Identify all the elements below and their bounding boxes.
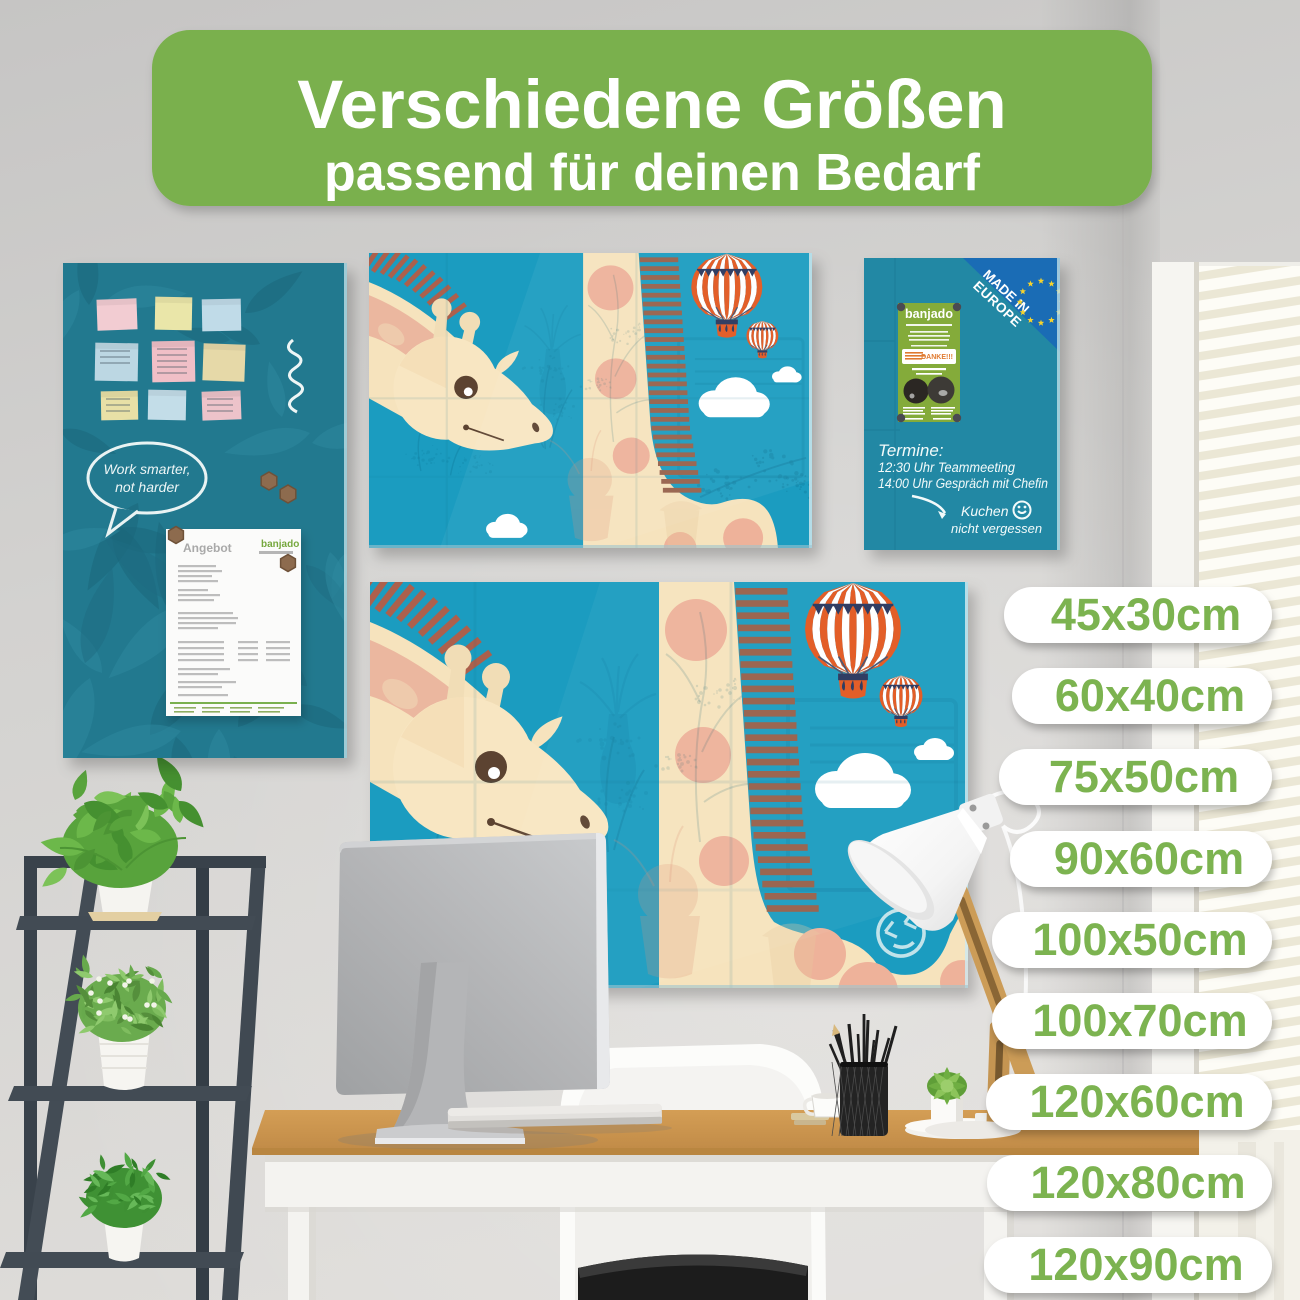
svg-text:120x60cm: 120x60cm bbox=[1029, 1076, 1244, 1127]
svg-text:45x30cm: 45x30cm bbox=[1051, 589, 1241, 640]
svg-text:passend für deinen Bedarf: passend für deinen Bedarf bbox=[324, 144, 981, 202]
svg-text:120x80cm: 120x80cm bbox=[1030, 1157, 1245, 1208]
svg-text:banjado: banjado bbox=[261, 539, 299, 550]
svg-text:Kuchen: Kuchen bbox=[961, 503, 1009, 519]
svg-text:Verschiedene Größen: Verschiedene Größen bbox=[297, 66, 1006, 143]
svg-text:Work smarter,: Work smarter, bbox=[103, 461, 190, 477]
svg-text:100x50cm: 100x50cm bbox=[1032, 914, 1247, 965]
svg-text:Angebot: Angebot bbox=[183, 541, 232, 555]
svg-text:not harder: not harder bbox=[115, 479, 180, 495]
svg-text:nicht vergessen: nicht vergessen bbox=[951, 521, 1042, 536]
svg-text:120x90cm: 120x90cm bbox=[1028, 1239, 1243, 1290]
svg-text:90x60cm: 90x60cm bbox=[1054, 833, 1244, 884]
svg-text:Termine:: Termine: bbox=[878, 441, 944, 460]
svg-text:60x40cm: 60x40cm bbox=[1055, 670, 1245, 721]
svg-text:14:00 Uhr Gespräch mit Chefin: 14:00 Uhr Gespräch mit Chefin bbox=[878, 476, 1048, 491]
svg-text:100x70cm: 100x70cm bbox=[1032, 995, 1247, 1046]
svg-text:75x50cm: 75x50cm bbox=[1049, 751, 1239, 802]
svg-text:banjado: banjado bbox=[905, 307, 953, 321]
svg-text:DANKE!!!: DANKE!!! bbox=[921, 354, 953, 361]
svg-text:12:30 Uhr Teammeeting: 12:30 Uhr Teammeeting bbox=[878, 460, 1015, 475]
